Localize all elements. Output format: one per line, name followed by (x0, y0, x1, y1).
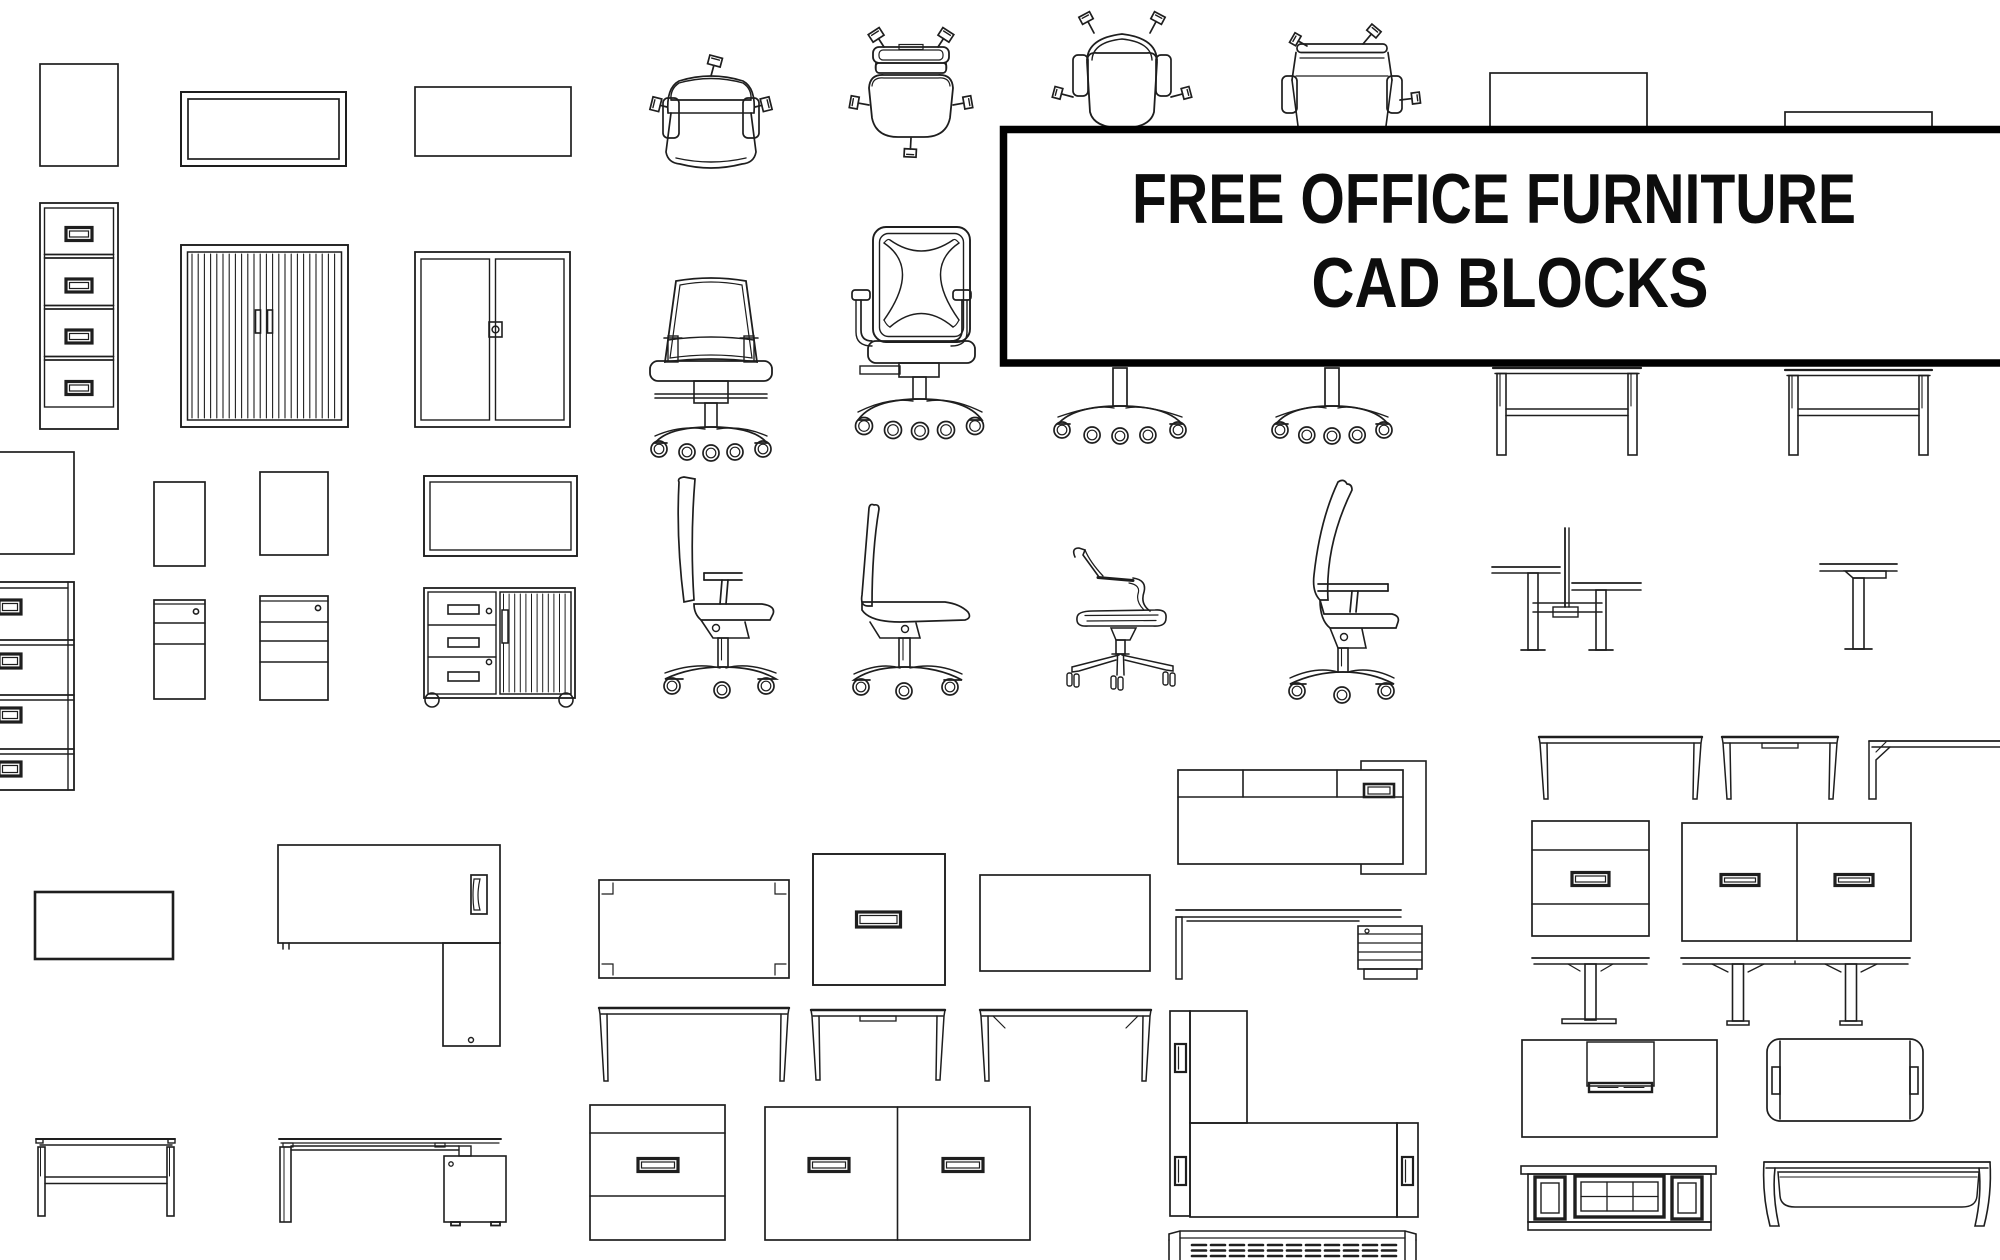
svg-text:FREE OFFICE FURNITURE: FREE OFFICE FURNITURE (1132, 159, 1856, 238)
svg-text:CAD BLOCKS: CAD BLOCKS (1312, 243, 1709, 322)
